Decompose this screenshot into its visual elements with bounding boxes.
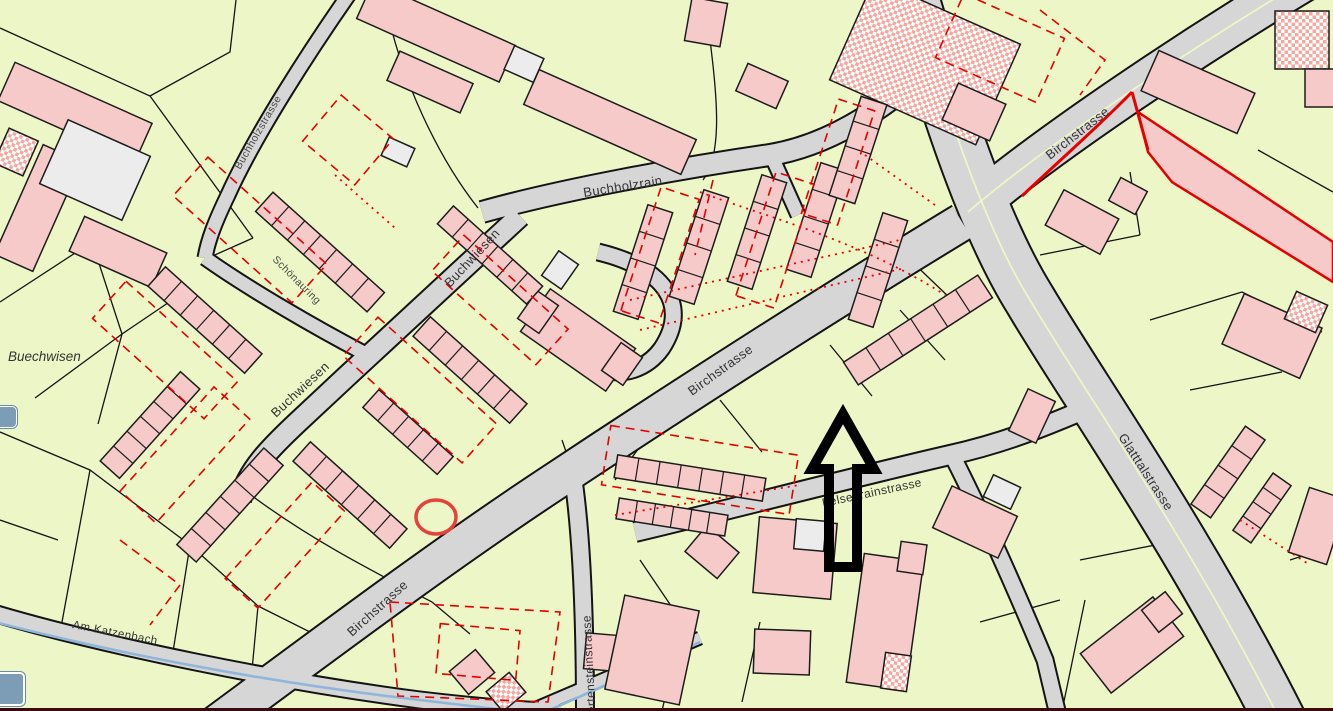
street-label-buchholzstrasse: Buchholzstrasse: [232, 94, 284, 172]
red-bordered-parcel: [1138, 112, 1333, 282]
annotation-circle: [416, 500, 456, 534]
place-label-buechwisen: Buechwisen: [8, 349, 81, 364]
map-canvas[interactable]: Buechwisen Buchholzstrasse Buchholzrain …: [0, 0, 1333, 711]
map-viewport[interactable]: Buechwisen Buchholzstrasse Buchholzrain …: [0, 0, 1333, 711]
map-corner-button[interactable]: [0, 672, 25, 706]
map-geometry-layer: [0, 0, 1333, 711]
map-edge-button[interactable]: [0, 406, 17, 428]
